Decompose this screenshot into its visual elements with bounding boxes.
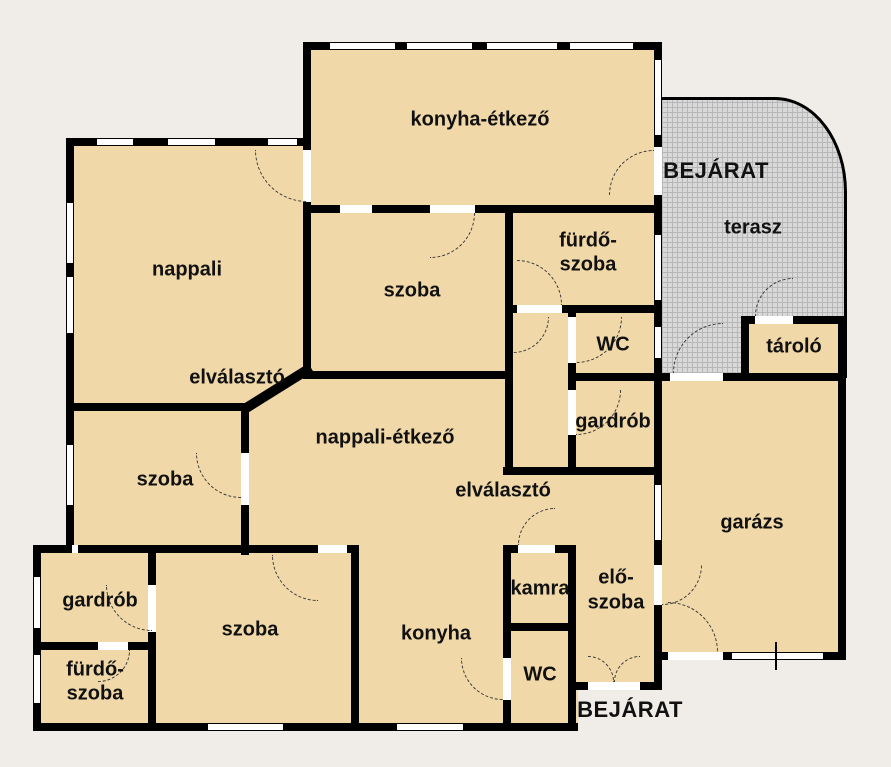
wall-living-room-right	[303, 202, 311, 379]
room-label-bath-bottom-1: fürdő-	[66, 659, 124, 682]
door-opening	[668, 652, 723, 660]
window	[66, 277, 74, 333]
window	[66, 203, 74, 263]
window	[654, 485, 662, 540]
room-label-divider-bottom: elválasztó	[455, 480, 551, 503]
window	[330, 42, 395, 50]
window	[168, 138, 215, 146]
door-opening	[755, 316, 793, 324]
outer-wall-garage-right	[838, 316, 846, 660]
garage-door	[732, 652, 823, 660]
door-opening	[518, 545, 555, 553]
wall-pantry-wc-divider	[503, 623, 576, 631]
door-opening	[98, 642, 128, 650]
room-label-room-top: szoba	[384, 280, 441, 303]
room-label-living-dining: nappali-étkező	[316, 427, 455, 450]
wall-wardrobe-mid-bottom	[503, 467, 662, 475]
room-label-garage: garázs	[720, 512, 783, 535]
door-opening	[670, 373, 723, 381]
window	[33, 577, 41, 628]
wall-pantry-right	[568, 545, 576, 731]
door-opening	[568, 317, 576, 363]
wall-room-bottom-right	[351, 545, 359, 731]
door-opening	[318, 545, 347, 553]
wall-wardrobe-bath-divider	[33, 642, 156, 650]
room-label-bath-bottom-2: szoba	[67, 683, 124, 706]
window	[33, 655, 41, 703]
wall-lower-block-top	[33, 545, 359, 553]
window	[570, 42, 633, 50]
door-opening	[588, 682, 640, 690]
window	[487, 42, 557, 50]
entrance-label-top: BEJÁRAT	[663, 158, 769, 184]
room-label-storage: tároló	[766, 336, 822, 359]
room-label-wc-bottom: WC	[523, 664, 556, 687]
door-opening	[517, 305, 562, 313]
room-label-living: nappali	[152, 259, 222, 282]
wall-hall-strip-left	[505, 205, 513, 470]
window	[66, 445, 74, 505]
room-label-kitchen: konyha	[401, 623, 471, 646]
room-label-pantry: kamra	[511, 578, 570, 601]
room-label-bath-top-1: fürdő-	[559, 230, 617, 253]
window	[654, 327, 662, 358]
entrance-label-bottom: BEJÁRAT	[577, 697, 683, 723]
wall-living-bottom	[66, 403, 249, 411]
floor-plan: OC OTTHON CENTRUM konyha-étkező BEJÁRAT …	[0, 0, 891, 767]
window	[397, 723, 463, 731]
garage-door-tick	[775, 642, 777, 670]
wall-kitchen-left-upper	[303, 42, 311, 150]
door-opening	[430, 205, 475, 213]
wall-lower-block-right	[148, 545, 156, 731]
door-opening	[654, 565, 662, 605]
window	[97, 138, 133, 146]
room-label-divider-top: elválasztó	[189, 367, 285, 390]
door-opening	[340, 205, 372, 213]
room-label-hall-2: szoba	[588, 592, 645, 615]
wall-storage-left	[741, 316, 749, 381]
outer-wall-bottom	[33, 723, 578, 731]
window	[654, 60, 662, 135]
wall-room-top-bottom	[303, 371, 513, 379]
door-opening	[241, 453, 249, 505]
room-label-terrace: terasz	[724, 217, 782, 240]
room-label-kitchen-dining: konyha-étkező	[411, 109, 550, 132]
room-label-bath-top-2: szoba	[560, 254, 617, 277]
door-opening	[72, 545, 78, 553]
room-label-wardrobe-bottom: gardrób	[62, 590, 138, 613]
room-label-room-left: szoba	[137, 469, 194, 492]
window	[407, 42, 472, 50]
room-label-room-bottom: szoba	[222, 619, 279, 642]
door-opening	[503, 658, 511, 700]
window	[268, 138, 297, 146]
outer-wall-lower-left	[33, 545, 41, 731]
room-label-wardrobe-mid: gardrób	[575, 411, 651, 434]
room-label-hall-1: elő-	[598, 567, 634, 590]
room-label-wc-top: WC	[596, 334, 629, 357]
wall-kitchen-pantry-divider	[503, 545, 511, 731]
window	[208, 723, 283, 731]
window	[654, 235, 662, 300]
door-opening	[654, 147, 662, 195]
